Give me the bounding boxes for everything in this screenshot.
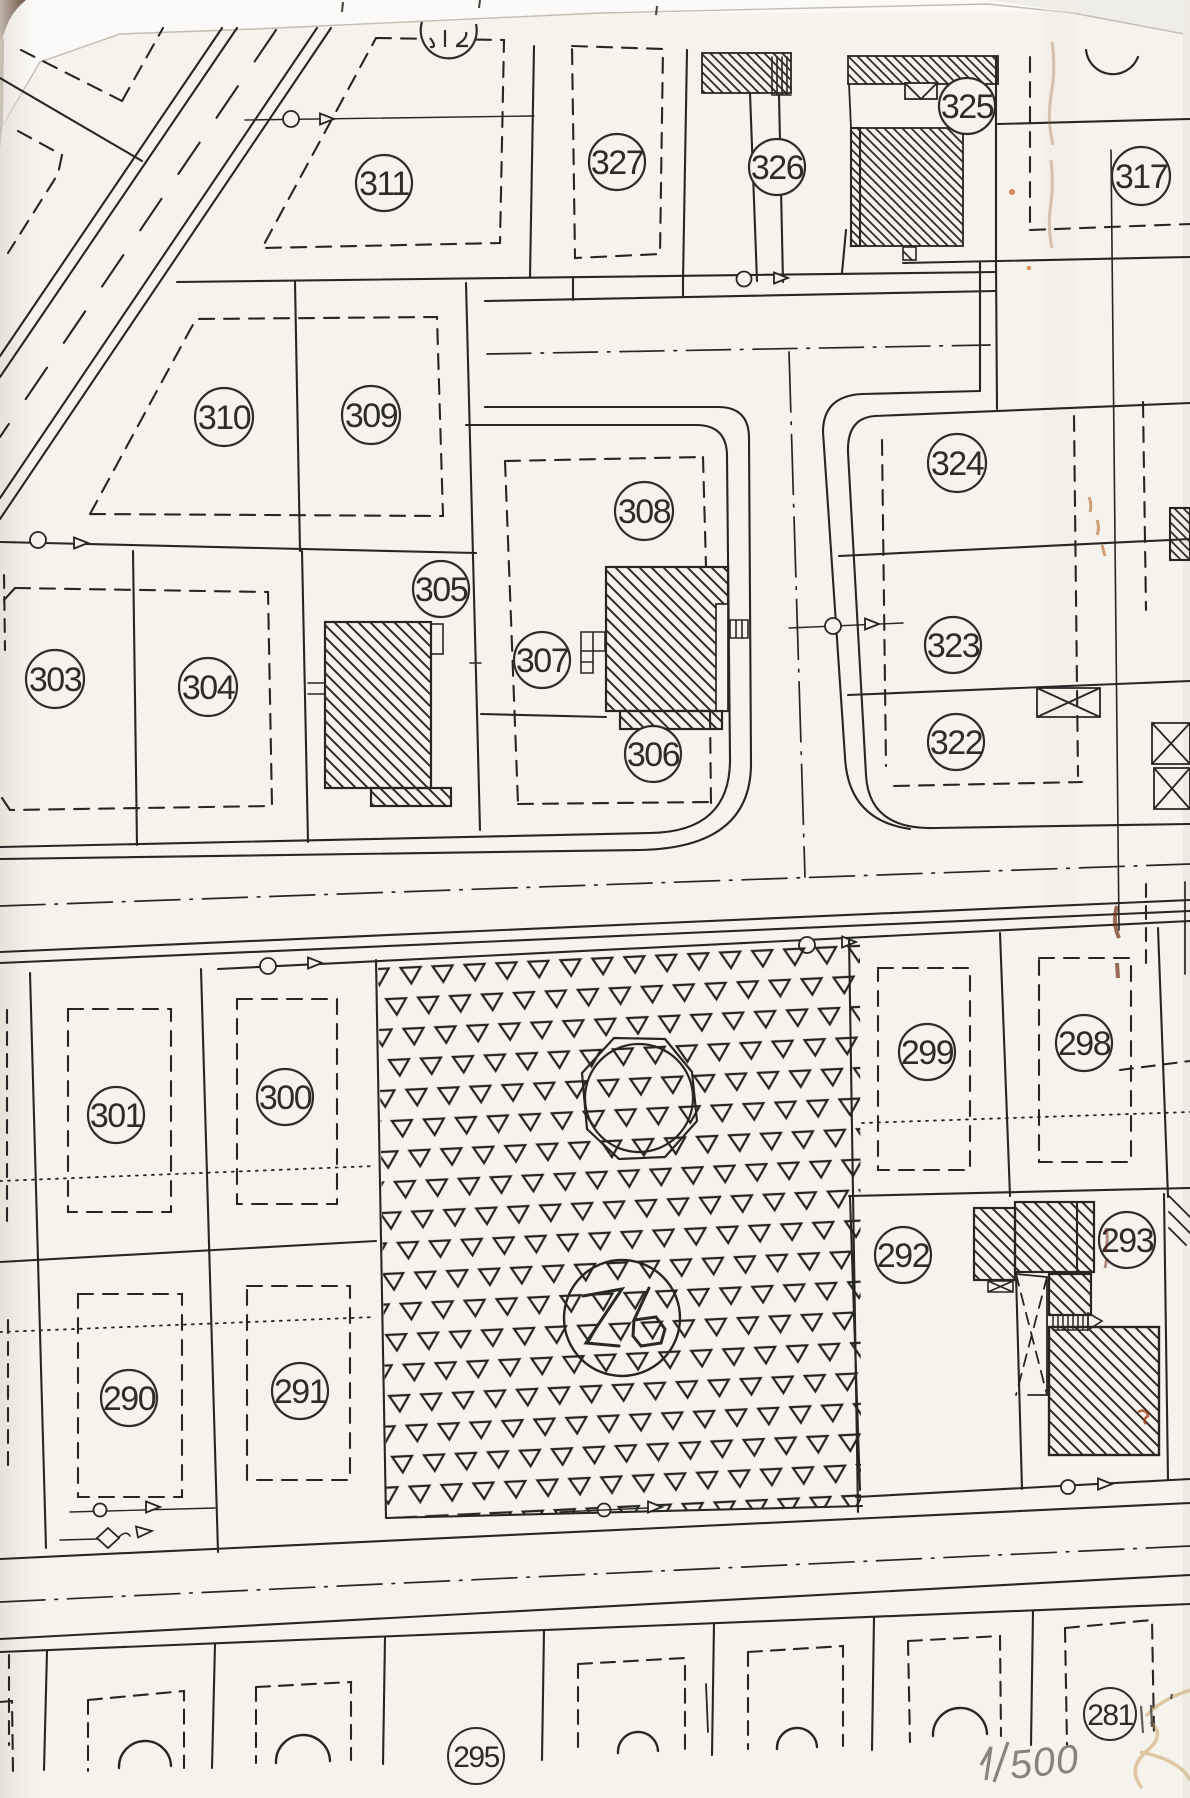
svg-text:299: 299	[901, 1034, 954, 1072]
svg-text:323: 323	[927, 627, 980, 665]
svg-text:304: 304	[182, 669, 235, 707]
svg-text:326: 326	[751, 149, 804, 187]
svg-text:324: 324	[931, 445, 984, 483]
svg-text:327: 327	[591, 144, 644, 182]
svg-text:295: 295	[453, 1741, 499, 1774]
svg-text:309: 309	[345, 397, 398, 435]
svg-text:293: 293	[1101, 1222, 1154, 1260]
svg-text:307: 307	[516, 642, 569, 680]
svg-text:303: 303	[29, 661, 82, 699]
svg-text:322: 322	[930, 724, 983, 762]
svg-text:305: 305	[415, 571, 468, 609]
svg-text:325: 325	[941, 88, 994, 126]
svg-text:290: 290	[103, 1380, 156, 1418]
svg-text:292: 292	[877, 1237, 930, 1275]
svg-text:298: 298	[1058, 1025, 1111, 1063]
svg-text:500: 500	[1007, 1737, 1081, 1788]
svg-text:308: 308	[618, 493, 671, 531]
svg-text:300: 300	[259, 1079, 312, 1117]
svg-text:306: 306	[627, 736, 680, 774]
svg-text:301: 301	[90, 1097, 143, 1135]
svg-text:291: 291	[274, 1373, 327, 1411]
svg-text:311: 311	[359, 165, 409, 203]
svg-text:310: 310	[198, 399, 251, 437]
svg-text:317: 317	[1115, 158, 1168, 196]
svg-text:281: 281	[1087, 1699, 1133, 1732]
